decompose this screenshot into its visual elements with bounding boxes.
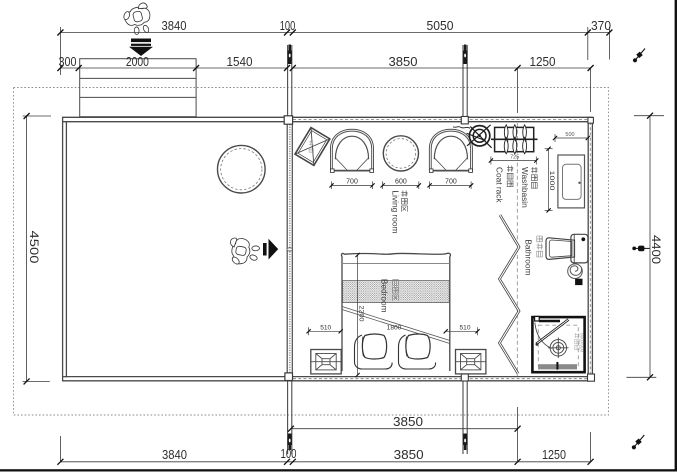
svg-text:Living room: Living room — [391, 191, 401, 234]
svg-text:2000: 2000 — [126, 55, 149, 69]
svg-text:1250: 1250 — [530, 55, 556, 69]
svg-text:3850: 3850 — [389, 55, 418, 69]
svg-text:1000: 1000 — [548, 171, 555, 192]
svg-text:3850: 3850 — [393, 415, 423, 429]
svg-text:1800: 1800 — [387, 325, 402, 332]
svg-text:1250: 1250 — [542, 448, 566, 462]
svg-text:500: 500 — [565, 132, 574, 138]
svg-text:3840: 3840 — [162, 19, 187, 33]
svg-text:Washbasin: Washbasin — [520, 167, 530, 208]
svg-text:3840: 3840 — [162, 448, 187, 462]
svg-text:Bathroom: Bathroom — [523, 239, 533, 275]
svg-text:1540: 1540 — [227, 55, 253, 69]
svg-text:4400: 4400 — [649, 235, 661, 264]
svg-text:100: 100 — [280, 19, 296, 33]
svg-text:510: 510 — [459, 325, 470, 332]
svg-text:3850: 3850 — [394, 448, 424, 462]
svg-text:5050: 5050 — [427, 19, 454, 33]
svg-text:Coat rack: Coat rack — [495, 167, 505, 203]
svg-text:100: 100 — [281, 447, 297, 461]
svg-text:2200: 2200 — [357, 306, 364, 322]
svg-text:370: 370 — [591, 19, 611, 33]
svg-text:300: 300 — [59, 55, 77, 69]
svg-text:600: 600 — [395, 178, 407, 185]
svg-text:510: 510 — [320, 325, 331, 332]
svg-text:725: 725 — [510, 155, 519, 161]
svg-text:900X900: 900X900 — [579, 333, 585, 353]
svg-text:700: 700 — [346, 178, 358, 185]
svg-text:700: 700 — [445, 178, 457, 185]
svg-text:4500: 4500 — [27, 231, 39, 264]
svg-text:Bedroom: Bedroom — [380, 279, 390, 313]
